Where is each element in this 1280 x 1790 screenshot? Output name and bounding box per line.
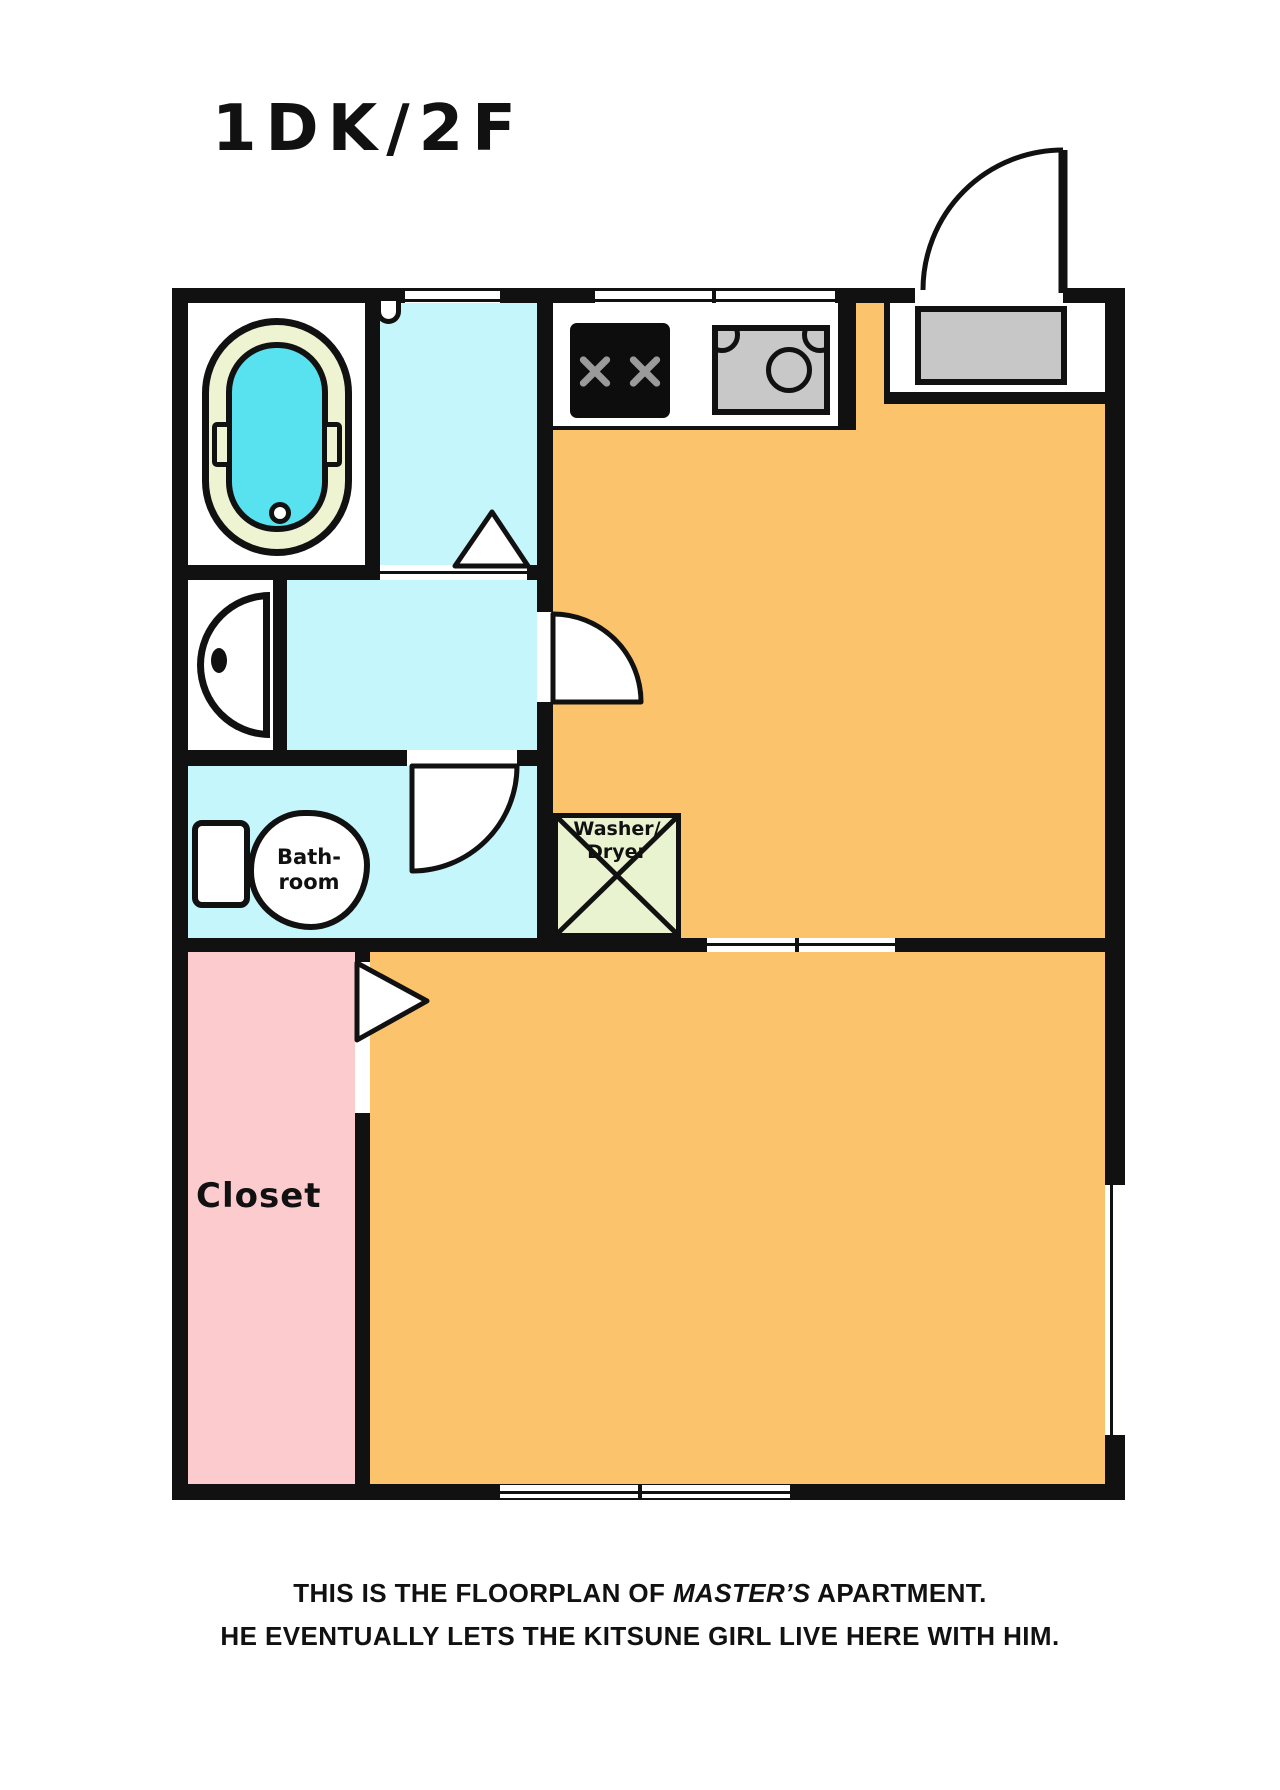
closet-label: Closet (196, 1176, 322, 1216)
toilet-tank (192, 820, 250, 908)
bathroom-label-line2: room (278, 870, 339, 895)
wall-bath-washroom (365, 303, 380, 565)
sink-corner-arc (712, 325, 740, 353)
stove-burner-icon (575, 351, 615, 391)
washer-label-line1: Washer/ (553, 818, 681, 841)
wall-entrance (838, 303, 856, 430)
toilet-fixture-dot (211, 648, 227, 673)
bottom-window-mullion (638, 1485, 642, 1498)
kitchen-window-mullion (712, 291, 716, 303)
kitchen-sink (712, 325, 830, 415)
living-sliding-door-tick (795, 938, 799, 952)
washroom-window-line (405, 299, 500, 302)
washer-label-line2: Dryer (553, 841, 681, 864)
kitchen-counter-edge (553, 426, 838, 430)
wall-living-divider (188, 938, 1105, 952)
bathtub-handle (212, 422, 232, 467)
caption-master-emphasis: MASTER’S (673, 1578, 811, 1608)
caption-line1: THIS IS THE FLOORPLAN OF MASTER’S APARTM… (0, 1572, 1280, 1615)
wall-toilet-hallway (273, 580, 287, 750)
entrance-mat (915, 306, 1067, 385)
sink-drain-icon (766, 347, 812, 393)
floorplan-title: 1DK/2F (212, 92, 525, 166)
right-window-line (1110, 1185, 1113, 1435)
caption-line2: HE EVENTUALLY LETS THE KITSUNE GIRL LIVE… (0, 1615, 1280, 1658)
bathroom-door-opening (407, 750, 517, 766)
right-window (1105, 1185, 1125, 1435)
stove-burner-icon (625, 351, 665, 391)
closet-floor (188, 952, 355, 1484)
sink-corner-arc (802, 325, 830, 353)
comic-floorplan-page: 1DK/2F (0, 0, 1280, 1790)
caption: THIS IS THE FLOORPLAN OF MASTER’S APARTM… (0, 1572, 1280, 1658)
washroom-floor (380, 303, 537, 565)
bathroom-label-line1: Bath- (277, 845, 341, 870)
living-sliding-door-line (707, 943, 895, 946)
washroom-sliding-door-line (380, 571, 527, 574)
closet-door-opening (355, 962, 370, 1113)
kitchen-stove (570, 323, 670, 418)
bottom-window-line (500, 1491, 790, 1494)
entrance-door-opening (915, 288, 1063, 303)
toilet-fixture (197, 592, 270, 738)
hallway-floor (287, 580, 537, 750)
bathtub-handle (322, 422, 342, 467)
kitchen-door-opening (537, 612, 553, 702)
entrance-door-arc (923, 150, 1063, 290)
bathroom-label: Bath- room (248, 810, 370, 930)
washer-dryer-label: Washer/ Dryer (553, 818, 681, 864)
living-room-floor (370, 952, 1105, 1484)
outer-wall-left (172, 288, 188, 1500)
bathtub-drain-icon (269, 502, 291, 524)
